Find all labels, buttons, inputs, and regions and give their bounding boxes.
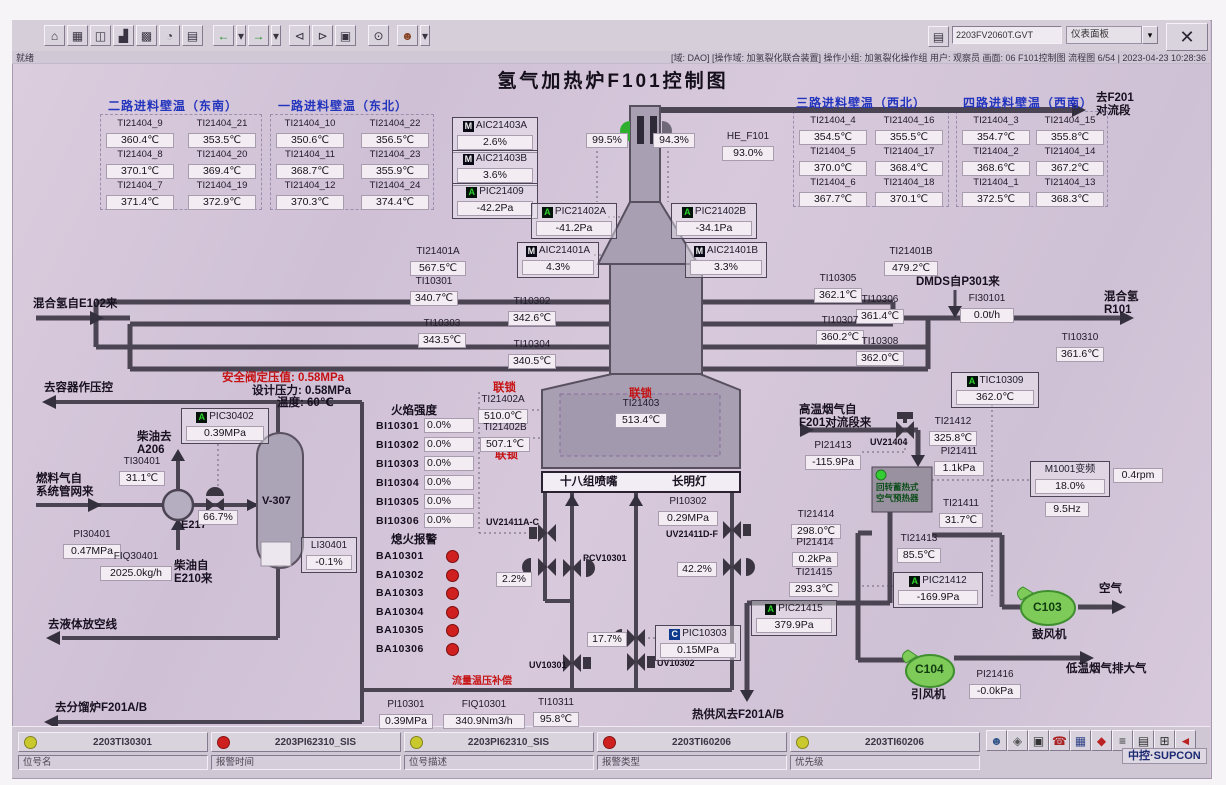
- FIQ10301-value[interactable]: 340.9Nm3/h: [443, 714, 525, 729]
- tag-FI30101: FI301010.0t/h: [958, 293, 1016, 323]
- alarm-tag: 2203TI60206: [815, 737, 974, 748]
- tag-name: TI21404_23: [359, 149, 431, 161]
- search-icon[interactable]: ⊙: [368, 25, 389, 46]
- priority-chip-A: A: [765, 604, 776, 615]
- TI21404_3-value[interactable]: 354.7℃: [962, 130, 1030, 145]
- alarm-field-5: 优先级: [790, 755, 980, 770]
- tuning-icon[interactable]: ◔: [159, 25, 180, 46]
- report-icon[interactable]: ▤: [182, 25, 203, 46]
- LI30401-value[interactable]: -0.1%: [306, 555, 352, 570]
- stack-damper-b-output: 94.3%: [651, 130, 697, 148]
- tag-BA10303: BA10303: [376, 587, 424, 599]
- tag-TI21404_6: TI21404_6367.7℃: [797, 177, 869, 207]
- tag-name: CPIC10303: [658, 628, 738, 640]
- tag-TI21404_1: TI21404_1372.5℃: [960, 177, 1032, 207]
- m1001-speed-value[interactable]: 0.4rpm: [1113, 468, 1163, 483]
- PIC10303-value[interactable]: 0.15MPa: [660, 643, 736, 658]
- close-button[interactable]: ✕: [1166, 23, 1208, 51]
- tag-name: MAIC21401B: [688, 245, 764, 257]
- alarm-priority-dot: [796, 736, 809, 749]
- back-icon[interactable]: ←: [213, 25, 234, 46]
- TI10304-value[interactable]: 340.5℃: [508, 354, 556, 369]
- PI21411-value[interactable]: 1.1kPa: [934, 461, 984, 476]
- alarm-tag: 2203TI30301: [43, 737, 202, 748]
- tag-name: TI30401: [117, 456, 167, 468]
- tag-TI21402A: TI21402A510.0℃: [476, 394, 530, 424]
- tag-BA10306: BA10306: [376, 643, 424, 655]
- tag-name: PI21414: [790, 537, 840, 549]
- tag-name: TI10307: [814, 315, 866, 327]
- design-temperature: 温度: 60℃: [277, 397, 334, 410]
- PI21416-value[interactable]: -0.0kPa: [969, 684, 1021, 699]
- tag-name: TI10302: [506, 296, 558, 308]
- PIC21402B-value[interactable]: -34.1Pa: [676, 221, 752, 236]
- tag-name: TI21404_21: [186, 118, 258, 130]
- tag-PI10301: PI103010.39MPa: [377, 699, 435, 729]
- TI10301-value[interactable]: 340.7℃: [410, 291, 458, 306]
- flame-intensity-header: 火焰强度: [391, 405, 437, 418]
- tag-name: TI21404_7: [104, 180, 176, 192]
- tag-name: TI21411: [937, 498, 985, 510]
- TI21404_7-value[interactable]: 371.4℃: [106, 195, 174, 210]
- fuel-gas-valve-output: 66.7%: [196, 507, 240, 525]
- priority-chip-A: A: [466, 187, 477, 198]
- TI21403-value[interactable]: 513.4℃: [615, 413, 667, 428]
- TI21402B-value[interactable]: 507.1℃: [480, 437, 530, 452]
- BI10304-value[interactable]: 0.0%: [424, 475, 474, 490]
- hot-air-to-f201ab: 热供风去F201A/B: [692, 709, 784, 722]
- screen-folder-icon[interactable]: ▤: [928, 26, 949, 47]
- PI21414-value[interactable]: 0.2kPa: [792, 552, 838, 567]
- tag-BA10305: BA10305: [376, 624, 424, 636]
- priority-chip-A: A: [967, 376, 978, 387]
- tag-TI21404_13: TI21404_13368.3℃: [1034, 177, 1106, 207]
- wall-table-header-4: 四路进料壁温（西南）: [963, 97, 1093, 111]
- tag-name: MAIC21403B: [455, 153, 535, 165]
- AIC21403A-value[interactable]: 2.6%: [457, 135, 533, 150]
- tag-name: LI30401: [304, 540, 354, 552]
- tag-PI21411: PI214111.1kPa: [932, 446, 986, 476]
- tag-TI21401A: TI21401A567.5℃: [408, 246, 468, 276]
- blower-label: 鼓风机: [1032, 629, 1067, 642]
- tag-name: TI21402A: [476, 394, 530, 406]
- PIC21412-value[interactable]: -169.9Pa: [898, 590, 978, 605]
- TI21404_21-value[interactable]: 353.5℃: [188, 133, 256, 148]
- tag-TI21401B: TI21401B479.2℃: [882, 246, 940, 276]
- alarm-cell-2[interactable]: 2203PI62310_SIS: [211, 732, 401, 752]
- screen-selector-input[interactable]: [952, 26, 1062, 44]
- PI10302-value[interactable]: 0.29MPa: [658, 511, 718, 526]
- BI10303-value[interactable]: 0.0%: [424, 456, 474, 471]
- HE_F101-value[interactable]: 93.0%: [722, 146, 774, 161]
- TI10302-value[interactable]: 342.6℃: [508, 311, 556, 326]
- back-menu-icon[interactable]: ▾: [236, 25, 246, 46]
- tag-name: PI21416: [967, 669, 1023, 681]
- tag-TI21404_24: TI21404_24374.4℃: [359, 180, 431, 210]
- AIC21401B-value[interactable]: 3.3%: [690, 260, 762, 275]
- FI30101-value[interactable]: 0.0t/h: [960, 308, 1014, 323]
- mixed-h2-to-r101: 混合氢 R101: [1104, 291, 1139, 317]
- alarm-cell-4[interactable]: 2203TI60206: [597, 732, 787, 752]
- tag-PIC10303: CPIC103030.15MPa: [655, 625, 741, 661]
- TI21415-value[interactable]: 293.3℃: [789, 582, 839, 597]
- tag-name: APIC21412: [896, 575, 980, 587]
- PIC21409-value[interactable]: -42.2Pa: [457, 201, 533, 216]
- tag-TI10301: TI10301340.7℃: [408, 276, 460, 306]
- tag-name: PI10301: [377, 699, 435, 711]
- tag-name: TI10311: [531, 697, 581, 709]
- tag-TI21404_11: TI21404_11368.7℃: [274, 149, 346, 179]
- tag-name: MAIC21403A: [455, 120, 535, 132]
- tag-name: TI10306: [854, 294, 906, 306]
- alarm-tag: 2203TI60206: [622, 737, 781, 748]
- BA10303-alarm-indicator[interactable]: [446, 587, 459, 600]
- tag-name: FIQ10301: [441, 699, 527, 711]
- tag-name: TI21404_16: [873, 115, 945, 127]
- tag-TI21411: TI2141131.7℃: [937, 498, 985, 528]
- tag-TI21404_15: TI21404_15355.8℃: [1034, 115, 1106, 145]
- fuel-gas-from-network: 燃料气自 系统管网来: [36, 473, 94, 499]
- tag-m1001-vfd: M1001变频18.0%: [1030, 461, 1110, 497]
- tag-TI21404_9: TI21404_9360.4℃: [104, 118, 176, 148]
- stack-damper-a-output: 99.5%: [584, 130, 630, 148]
- tag-name: TI10310: [1054, 332, 1106, 344]
- tag-name: TI21404_19: [186, 180, 258, 192]
- tag-name: APIC21402B: [674, 206, 754, 218]
- TI21411-value[interactable]: 31.7℃: [939, 513, 983, 528]
- pilot-lamp-label: 长明灯: [672, 476, 707, 489]
- lock-icon[interactable]: ◈: [1007, 730, 1028, 751]
- tag-TI21404_7: TI21404_7371.4℃: [104, 180, 176, 210]
- tag-name: FI30101: [958, 293, 1016, 305]
- tag-TI21404_8: TI21404_8370.1℃: [104, 149, 176, 179]
- alarm-cell-1[interactable]: 2203TI30301: [18, 732, 208, 752]
- stack-damper-a-output-value[interactable]: 99.5%: [586, 133, 628, 148]
- BA10304-alarm-indicator[interactable]: [446, 606, 459, 619]
- to-liquid-vent: 去液体放空线: [48, 619, 117, 632]
- tag-name: TI21404_14: [1034, 146, 1106, 158]
- tag-TI21404_4: TI21404_4354.5℃: [797, 115, 869, 145]
- tag-name: TI21404_6: [797, 177, 869, 189]
- tag-TI10303: TI10303343.5℃: [416, 318, 468, 348]
- TI21404_24-value[interactable]: 374.4℃: [361, 195, 429, 210]
- priority-chip-A: A: [542, 207, 553, 218]
- PIC30402-value[interactable]: 0.39MPa: [186, 426, 264, 441]
- TI21404_23-value[interactable]: 355.9℃: [361, 164, 429, 179]
- flameout-alarm-header: 熄火报警: [391, 534, 437, 547]
- tag-TI21404_16: TI21404_16355.5℃: [873, 115, 945, 145]
- tag-name: TI21403: [613, 398, 669, 410]
- spreadsheet-icon[interactable]: ▦: [1070, 730, 1091, 751]
- tag-name: M1001变频: [1033, 464, 1107, 476]
- TI21404_2-value[interactable]: 368.6℃: [962, 161, 1030, 176]
- tag-TI21404_21: TI21404_21353.5℃: [186, 118, 258, 148]
- alarm-priority-dot: [410, 736, 423, 749]
- M1001变频-value[interactable]: 18.0%: [1035, 479, 1105, 494]
- book-icon[interactable]: ▣: [335, 25, 356, 46]
- pic10303-valve-output: 17.7%: [585, 629, 629, 647]
- priority-chip-A: A: [682, 207, 693, 218]
- forward-menu-icon[interactable]: ▾: [271, 25, 281, 46]
- tag-TI21404_2: TI21404_2368.6℃: [960, 146, 1032, 176]
- tag-TI10311: TI1031195.8℃: [531, 697, 581, 727]
- tag-name: TI21404_11: [274, 149, 346, 161]
- TI10311-value[interactable]: 95.8℃: [533, 712, 579, 727]
- to-vessel-pressure-control: 去容器作压控: [44, 382, 113, 395]
- AIC21403B-value[interactable]: 3.6%: [457, 168, 533, 183]
- TI21412-value[interactable]: 325.8℃: [929, 431, 977, 446]
- tag-name: FIQ30401: [98, 551, 174, 563]
- priority-chip-M: M: [694, 246, 705, 257]
- fan-c104-label: C104: [915, 663, 944, 677]
- status-ready: 就绪: [16, 51, 34, 64]
- m1001-frequency-value[interactable]: 9.5Hz: [1045, 502, 1089, 517]
- tag-TI21403: TI21403513.4℃: [613, 398, 669, 428]
- status-info: [域: DAO] [操作域: 加氢裂化联合装置] 操作小组: 加氢裂化操作组 用…: [671, 51, 1206, 64]
- TI21404_20-value[interactable]: 369.4℃: [188, 164, 256, 179]
- m1001-speed: 0.4rpm: [1111, 465, 1165, 483]
- TI10308-value[interactable]: 362.0℃: [856, 351, 904, 366]
- tag-name: TI21404_24: [359, 180, 431, 192]
- safety-valve-set-pressure: 安全阀定压值: 0.58MPa: [222, 372, 344, 385]
- alarm-field-4: 报警类型: [597, 755, 787, 770]
- alarm-tag: 2203PI62310_SIS: [236, 737, 395, 748]
- priority-chip-A: A: [196, 412, 207, 423]
- tag-PI10302: PI103020.29MPa: [656, 496, 720, 526]
- TI21404_9-value[interactable]: 360.4℃: [106, 133, 174, 148]
- AIC21401A-value[interactable]: 4.3%: [522, 260, 594, 275]
- statusbar: 就绪 [域: DAO] [操作域: 加氢裂化联合装置] 操作小组: 加氢裂化操作…: [12, 51, 1210, 64]
- wall-table-header-2: 一路进料壁温（东北）: [278, 100, 408, 114]
- tag-name: TI21404_13: [1034, 177, 1106, 189]
- tag-TI21413: TI2141385.5℃: [895, 533, 943, 563]
- forward-icon[interactable]: →: [248, 25, 269, 46]
- tag-name: PI30401: [61, 529, 123, 541]
- TI21413-value[interactable]: 85.5℃: [897, 548, 941, 563]
- tag-name: TI21401A: [408, 246, 468, 258]
- tag-name: TI21404_17: [873, 146, 945, 158]
- TI21404_16-value[interactable]: 355.5℃: [875, 130, 943, 145]
- tag-name: PI21413: [803, 440, 863, 452]
- TI21404_1-value[interactable]: 372.5℃: [962, 192, 1030, 207]
- TI21404_12-value[interactable]: 370.3℃: [276, 195, 344, 210]
- window-icon[interactable]: ◫: [90, 25, 111, 46]
- user-menu-icon[interactable]: ▾: [420, 25, 430, 46]
- tag-name: TI21404_4: [797, 115, 869, 127]
- tag-PIC21402B: APIC21402B-34.1Pa: [671, 203, 757, 239]
- pilot-control-output-value[interactable]: 42.2%: [677, 562, 717, 577]
- tag-name: APIC21402A: [534, 206, 614, 218]
- tag-name: APIC30402: [184, 411, 266, 423]
- tag-name: TI21404_3: [960, 115, 1032, 127]
- PIC21415-value[interactable]: 379.9Pa: [756, 618, 832, 633]
- tag-BI10301: BI10301: [376, 420, 419, 432]
- phone-icon[interactable]: ☎: [1049, 730, 1070, 751]
- BA10306-alarm-indicator[interactable]: [446, 643, 459, 656]
- vessel-v307-label: V-307: [262, 495, 291, 508]
- TIC10309-value[interactable]: 362.0℃: [956, 390, 1034, 405]
- pic10303-valve-output-value[interactable]: 17.7%: [587, 632, 627, 647]
- tag-TI21404_12: TI21404_12370.3℃: [274, 180, 346, 210]
- tag-name: TI10303: [416, 318, 468, 330]
- cold-fluegas-to-atmosphere: 低温烟气排大气: [1066, 663, 1147, 676]
- factory-icon[interactable]: ▟: [113, 25, 134, 46]
- burner-groups-label: 十八组喷嘴: [560, 476, 618, 489]
- m1001-frequency: 9.5Hz: [1043, 499, 1091, 517]
- TI21404_18-value[interactable]: 370.1℃: [875, 192, 943, 207]
- TI21404_13-value[interactable]: 368.3℃: [1036, 192, 1104, 207]
- page-prev-icon[interactable]: ⊲: [289, 25, 310, 46]
- tag-HE_F101: HE_F10193.0%: [720, 131, 776, 161]
- tag-BA10304: BA10304: [376, 606, 424, 618]
- priority-chip-M: M: [463, 154, 474, 165]
- BI10301-value[interactable]: 0.0%: [424, 418, 474, 433]
- tag-TI21402B: TI21402B507.1℃: [478, 422, 532, 452]
- tag-PIC30402: APIC304020.39MPa: [181, 408, 269, 444]
- tag-TI10304: TI10304340.5℃: [506, 339, 558, 369]
- panel-dropdown[interactable]: 仪表面板 ▾: [1066, 26, 1158, 44]
- tag-TI21404_22: TI21404_22356.5℃: [359, 118, 431, 148]
- PI10301-value[interactable]: 0.39MPa: [379, 714, 433, 729]
- overview-icon[interactable]: ▦: [67, 25, 88, 46]
- priority-chip-A: A: [909, 576, 920, 587]
- wall-table-header-3: 三路进料壁温（西北）: [796, 97, 926, 111]
- TI10310-value[interactable]: 361.6℃: [1056, 347, 1104, 362]
- mixed-h2-from-e102: 混合氢自E102来: [33, 298, 117, 311]
- tag-FIQ30401: FIQ304012025.0kg/h: [98, 551, 174, 581]
- tag-AIC21403B: MAIC21403B3.6%: [452, 150, 538, 186]
- alarm-field-2: 报警时间: [211, 755, 401, 770]
- BA10305-alarm-indicator[interactable]: [446, 624, 459, 637]
- TI21404_6-value[interactable]: 367.7℃: [799, 192, 867, 207]
- BI10305-value[interactable]: 0.0%: [424, 494, 474, 509]
- TI21404_8-value[interactable]: 370.1℃: [106, 164, 174, 179]
- tag-BI10305: BI10305: [376, 496, 419, 508]
- tag-name: TI10301: [408, 276, 460, 288]
- tag-TI21415: TI21415293.3℃: [787, 567, 841, 597]
- BA10301-alarm-indicator[interactable]: [446, 550, 459, 563]
- tag-TI21412: TI21412325.8℃: [927, 416, 979, 446]
- alarm-field-1: 位号名: [18, 755, 208, 770]
- tag-TI10308: TI10308362.0℃: [854, 336, 906, 366]
- monitor-icon[interactable]: ▣: [1028, 730, 1049, 751]
- dmds-from-p301: DMDS自P301来: [916, 276, 1000, 289]
- tag-name: TI21404_8: [104, 149, 176, 161]
- tag-name: APIC21415: [754, 603, 834, 615]
- page-title: 氢气加热炉F101控制图: [0, 66, 1226, 93]
- TI10303-value[interactable]: 343.5℃: [418, 333, 466, 348]
- diesel-from-e210: 柴油自 E210来: [174, 560, 212, 586]
- TI21401B-value[interactable]: 479.2℃: [884, 261, 938, 276]
- TI21404_22-value[interactable]: 356.5℃: [361, 133, 429, 148]
- tag-name: HE_F101: [720, 131, 776, 143]
- uv21411ac-label: UV21411A-C: [486, 517, 539, 527]
- tag-name: TI21412: [927, 416, 979, 428]
- tag-AIC21401B: MAIC21401B3.3%: [685, 242, 767, 278]
- TI30401-value[interactable]: 31.1℃: [119, 471, 165, 486]
- tag-TI21404_3: TI21404_3354.7℃: [960, 115, 1032, 145]
- tag-AIC21403A: MAIC21403A2.6%: [452, 117, 538, 153]
- TI21404_15-value[interactable]: 355.8℃: [1036, 130, 1104, 145]
- TI21401A-value[interactable]: 567.5℃: [410, 261, 466, 276]
- tag-TIC10309: ATIC10309362.0℃: [951, 372, 1039, 408]
- tag-TI10310: TI10310361.6℃: [1054, 332, 1106, 362]
- user-icon[interactable]: ☻: [397, 25, 418, 46]
- BI10302-value[interactable]: 0.0%: [424, 437, 474, 452]
- page-next-icon[interactable]: ⊳: [312, 25, 333, 46]
- tag-TI21404_17: TI21404_17368.4℃: [873, 146, 945, 176]
- tag-name: PI21411: [932, 446, 986, 458]
- tag-FIQ10301: FIQ10301340.9Nm3/h: [441, 699, 527, 729]
- TI21404_19-value[interactable]: 372.9℃: [188, 195, 256, 210]
- uv21404-label: UV21404: [870, 437, 908, 447]
- alarm-priority-dot: [603, 736, 616, 749]
- priority-chip-C: C: [669, 629, 680, 640]
- TI21404_5-value[interactable]: 370.0℃: [799, 161, 867, 176]
- alarm-cell-3[interactable]: 2203PI62310_SIS: [404, 732, 594, 752]
- priority-chip-M: M: [526, 246, 537, 257]
- TI21404_14-value[interactable]: 367.2℃: [1036, 161, 1104, 176]
- alarm-icon[interactable]: ◆: [1091, 730, 1112, 751]
- flow-temp-press-compensation: 流量温压补偿: [452, 676, 512, 688]
- FIQ30401-value[interactable]: 2025.0kg/h: [100, 566, 172, 581]
- BA10302-alarm-indicator[interactable]: [446, 569, 459, 582]
- tag-name: TI21404_20: [186, 149, 258, 161]
- tag-name: TI21401B: [882, 246, 940, 258]
- TI21404_10-value[interactable]: 350.6℃: [276, 133, 344, 148]
- burner-control-output-value[interactable]: 2.2%: [496, 572, 532, 587]
- fuel-gas-valve-output-value[interactable]: 66.7%: [198, 510, 238, 525]
- TI21404_17-value[interactable]: 368.4℃: [875, 161, 943, 176]
- to-fractionator-f201ab: 去分馏炉F201A/B: [55, 702, 147, 715]
- tag-AIC21401A: MAIC21401A4.3%: [517, 242, 599, 278]
- stack-damper-b-output-value[interactable]: 94.3%: [653, 133, 695, 148]
- tag-TI21404_19: TI21404_19372.9℃: [186, 180, 258, 210]
- tag-PI21413: PI21413-115.9Pa: [803, 440, 863, 470]
- tag-BI10304: BI10304: [376, 477, 419, 489]
- tag-TI21414: TI21414298.0℃: [789, 509, 843, 539]
- tag-name: TI21404_2: [960, 146, 1032, 158]
- TI21404_11-value[interactable]: 368.7℃: [276, 164, 344, 179]
- tag-BI10303: BI10303: [376, 458, 419, 470]
- tag-name: TI21404_12: [274, 180, 346, 192]
- operator-icon[interactable]: ☻: [986, 730, 1007, 751]
- BI10306-value[interactable]: 0.0%: [424, 513, 474, 528]
- PI21413-value[interactable]: -115.9Pa: [805, 455, 861, 470]
- fan-c103-label: C103: [1033, 601, 1062, 615]
- PIC21402A-value[interactable]: -41.2Pa: [536, 221, 612, 236]
- TI21404_4-value[interactable]: 354.5℃: [799, 130, 867, 145]
- wall-table-header-1: 二路进料壁温（东南）: [108, 100, 238, 114]
- chevron-down-icon[interactable]: ▾: [1142, 26, 1158, 44]
- tag-name: TI21404_10: [274, 118, 346, 130]
- tag-name: MAIC21401A: [520, 245, 596, 257]
- alarm-priority-dot: [24, 736, 37, 749]
- air-label: 空气: [1099, 583, 1122, 596]
- tag-LI30401: LI30401-0.1%: [301, 537, 357, 573]
- tag-TI21404_14: TI21404_14367.2℃: [1034, 146, 1106, 176]
- tag-BI10306: BI10306: [376, 515, 419, 527]
- home-icon[interactable]: ⌂: [44, 25, 65, 46]
- tag-name: TI21404_1: [960, 177, 1032, 189]
- group-display-icon[interactable]: ▩: [136, 25, 157, 46]
- alarm-priority-dot: [217, 736, 230, 749]
- tag-name: APIC21409: [455, 186, 535, 198]
- pilot-control-output: 42.2%: [675, 559, 719, 577]
- alarm-cell-5[interactable]: 2203TI60206: [790, 732, 980, 752]
- air-preheater-label: 回转蓄热式 空气预热器: [876, 482, 919, 503]
- tag-TI10302: TI10302342.6℃: [506, 296, 558, 326]
